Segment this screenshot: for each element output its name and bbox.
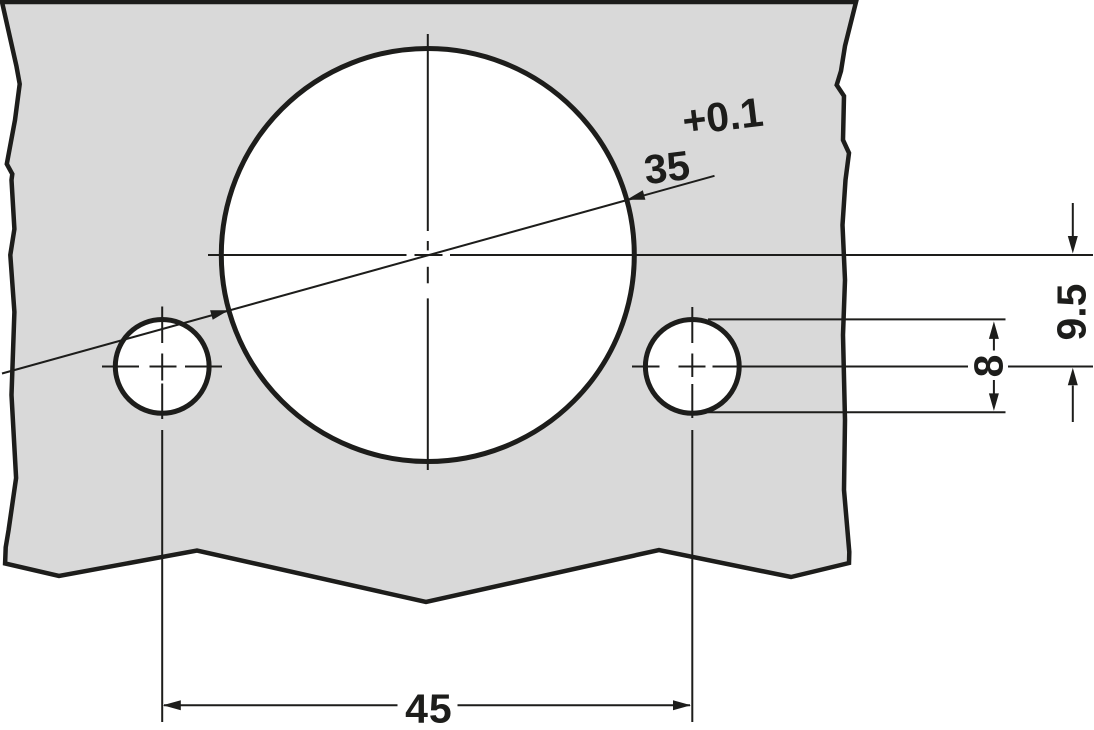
svg-text:35: 35 <box>641 142 692 193</box>
svg-text:8: 8 <box>966 354 1012 377</box>
svg-text:+0.1: +0.1 <box>680 89 766 145</box>
svg-text:45: 45 <box>405 686 453 730</box>
svg-text:9.5: 9.5 <box>1048 284 1094 341</box>
